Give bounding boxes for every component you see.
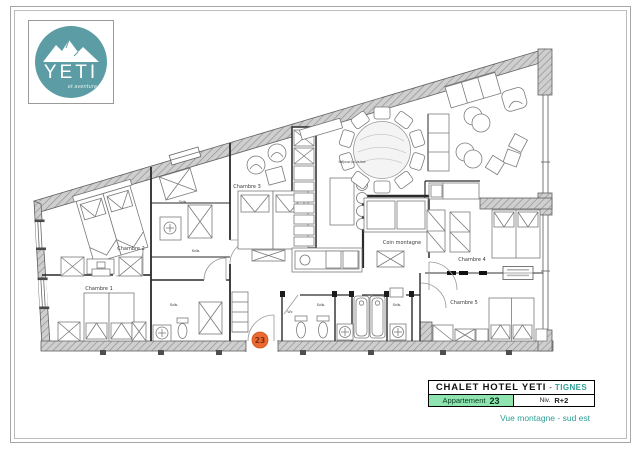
title-block-details: Appartement 23 Niv. R+2: [428, 395, 595, 407]
title-block-header: CHALET HOTEL YETI - TIGNES: [428, 380, 595, 395]
armchairs-chambre3: [247, 144, 286, 185]
kitchen-counter: [292, 248, 362, 272]
apartment-cell: Appartement 23: [428, 395, 514, 407]
bathroom-chambre1: [153, 302, 222, 341]
yeti-logo-tagline: et aventure: [35, 84, 97, 90]
view-caption: Vue montagne - sud est: [428, 413, 595, 423]
level-value: R+2: [554, 396, 568, 405]
page: Chambre 1 Chambre 2 Chambre 3 Chambre 4 …: [0, 0, 640, 453]
wall-right-pillar-top: [538, 49, 552, 95]
label-chambre1: Chambre 1: [85, 286, 113, 292]
apartment-number: 23: [489, 396, 499, 406]
coin-montagne-furniture: [364, 198, 445, 267]
title-separator: -: [549, 383, 552, 392]
label-coin-montagne: Coin montagne: [383, 240, 421, 246]
dining-table: [339, 107, 426, 193]
entry-cabinet: [232, 292, 248, 332]
yeti-logo-text: YETI: [35, 62, 107, 84]
wall-bottom: [41, 341, 553, 351]
entrance-badge-number: 23: [255, 336, 265, 345]
entrance-badge: 23: [252, 332, 268, 348]
title-block: CHALET HOTEL YETI - TIGNES Appartement 2…: [428, 380, 595, 423]
label-wc: Wc: [287, 310, 292, 314]
yeti-logo: YETI et aventure: [28, 20, 114, 104]
yeti-logo-circle: YETI et aventure: [35, 26, 107, 98]
label-chambre3: Chambre 3: [233, 184, 261, 190]
label-sdb-1: Sdb.: [179, 199, 188, 204]
level-cell: Niv. R+2: [514, 395, 595, 407]
label-sdb-3: Sdb.: [170, 302, 179, 307]
label-chambre4: Chambre 4: [458, 257, 486, 263]
wall-stub-chambre4: [480, 198, 552, 209]
label-sdb-2: Sdb.: [192, 248, 201, 253]
bed-chambre1: [58, 269, 146, 341]
label-sdb-5: Sdb.: [393, 302, 402, 307]
label-sejour-cuisine: Séjour/cuisine: [338, 159, 366, 164]
sliding-partition: [425, 267, 543, 280]
label-chambre5: Chambre 5: [450, 300, 478, 306]
wall-pillar-chambre5: [420, 322, 432, 341]
mountain-icon: [43, 38, 99, 62]
hotel-location: TIGNES: [555, 383, 587, 392]
hotel-name: CHALET HOTEL YETI: [436, 382, 546, 393]
level-label: Niv.: [540, 397, 551, 404]
label-chambre2: Chambre 2: [117, 246, 145, 252]
apartment-label: Appartement: [443, 396, 486, 405]
label-sdb-4: Sdb.: [317, 302, 326, 307]
bed-chambre4: [429, 183, 540, 258]
